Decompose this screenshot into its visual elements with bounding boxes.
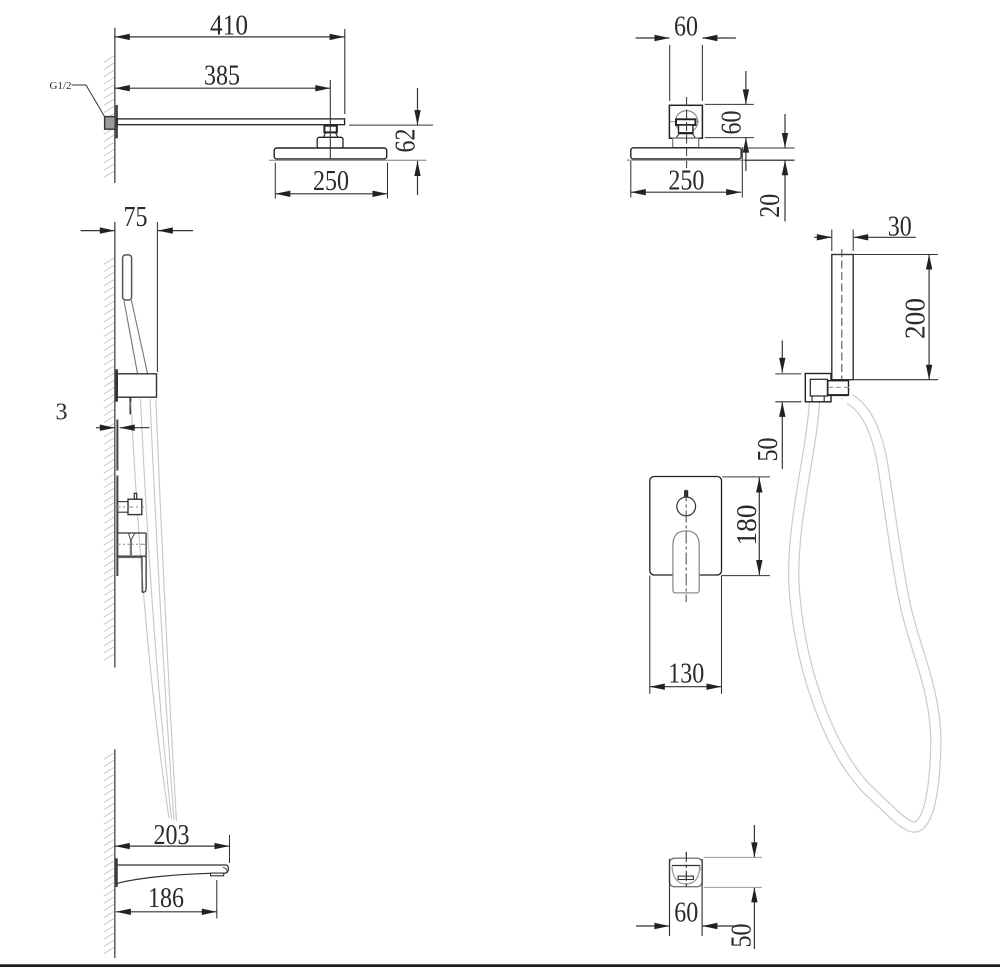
svg-text:180: 180 (731, 505, 763, 546)
svg-text:250: 250 (668, 165, 704, 197)
svg-text:62: 62 (389, 129, 421, 153)
svg-text:G1/2: G1/2 (50, 80, 72, 92)
svg-text:60: 60 (715, 111, 747, 135)
svg-text:60: 60 (674, 897, 698, 929)
svg-text:385: 385 (204, 60, 240, 92)
svg-text:3: 3 (56, 400, 68, 426)
svg-text:20: 20 (754, 194, 786, 218)
svg-text:186: 186 (148, 882, 184, 914)
svg-text:50: 50 (752, 438, 784, 462)
svg-text:75: 75 (124, 201, 148, 233)
svg-text:250: 250 (313, 165, 349, 197)
svg-text:50: 50 (725, 924, 757, 948)
svg-text:200: 200 (899, 298, 931, 339)
svg-text:203: 203 (154, 819, 190, 851)
svg-text:130: 130 (668, 658, 704, 690)
svg-text:60: 60 (674, 11, 698, 43)
svg-text:410: 410 (210, 10, 248, 42)
svg-text:30: 30 (888, 210, 912, 242)
